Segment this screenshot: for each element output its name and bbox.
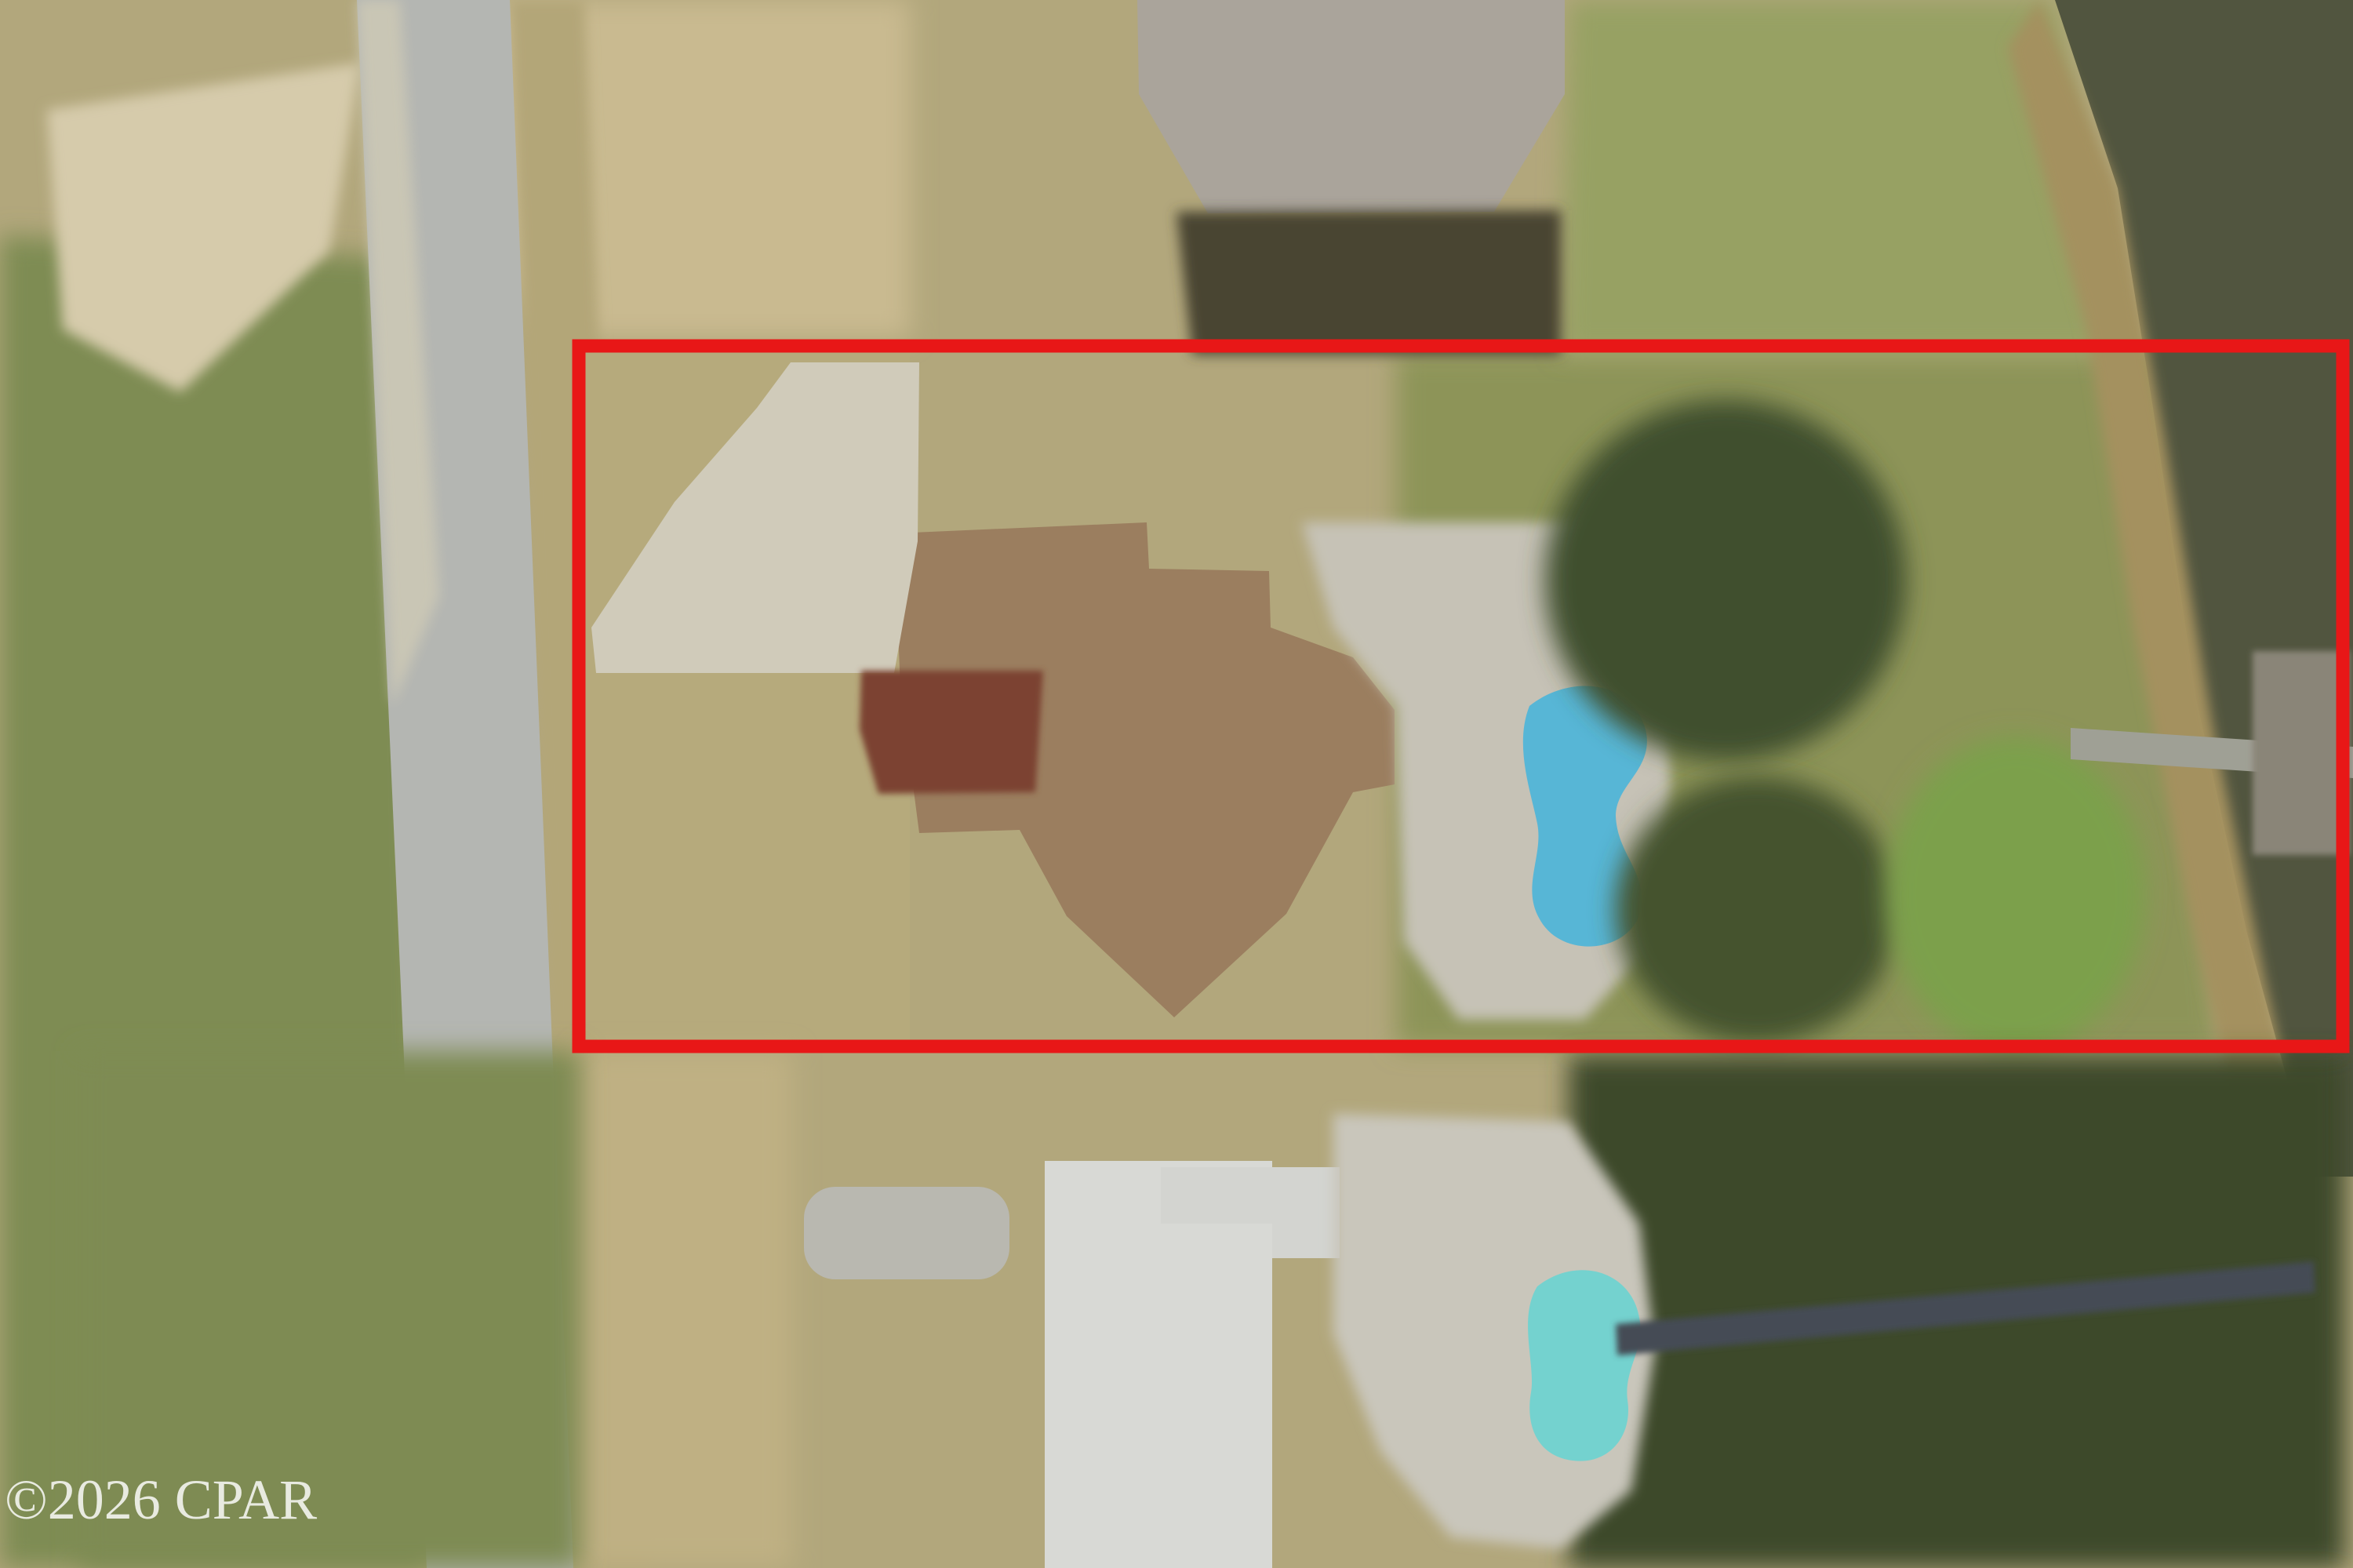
svg-text:©2026 CPAR: ©2026 CPAR [5, 1468, 317, 1531]
